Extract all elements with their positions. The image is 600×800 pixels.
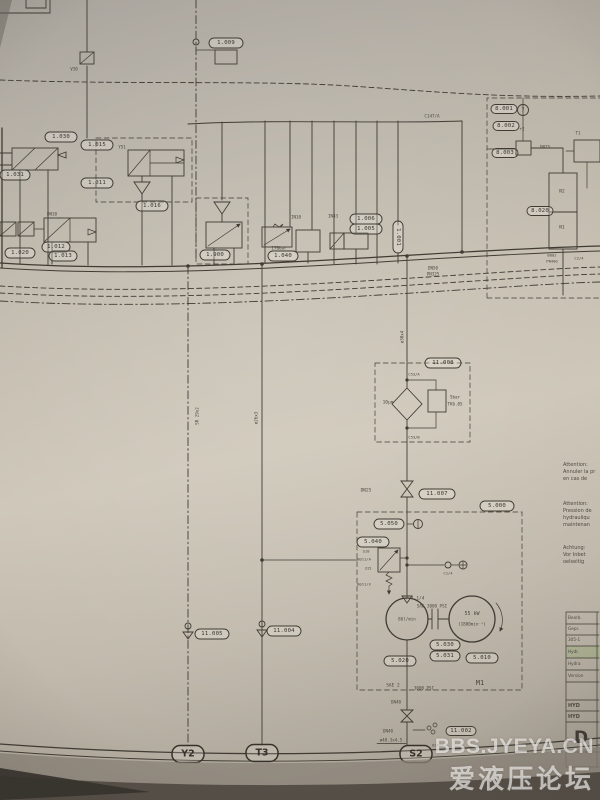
label-sae3000: SAE 3000 PSI [417, 604, 448, 609]
station-top-left: 1.030 1.031 1.015 1.011 Y51 1.016 [0, 132, 192, 265]
motor-id-label: M1 [476, 679, 484, 687]
label-b011a: B011/A [357, 557, 371, 562]
label-b002: B002 [547, 253, 556, 258]
label-pipe-483: ø48.3x4.5 [380, 738, 403, 743]
svg-text:8.020: 8.020 [531, 208, 549, 214]
svg-text:11.002: 11.002 [450, 728, 471, 734]
motor-power-label: 55 kW [464, 611, 480, 617]
svg-text:1.011: 1.011 [88, 180, 106, 186]
label-dn40-b: DN40 [383, 729, 394, 734]
notes-block: Attention: Annuler la pr en cas de Atten… [563, 462, 596, 565]
label-170bar: 170bar [271, 246, 287, 251]
note-fr2-line3: hydrauliqu [563, 515, 590, 521]
label-sr29x2: SR 29x2 [195, 407, 200, 425]
svg-text:5.040: 5.040 [364, 539, 382, 545]
component-tag-1006: 1.006 [350, 214, 382, 224]
svg-text:S2: S2 [409, 749, 422, 760]
svg-text:8.001: 8.001 [495, 106, 513, 112]
note-fr2-line2: Pression de [563, 508, 592, 514]
svg-text:5.010: 5.010 [473, 655, 491, 661]
note-de-line1: Achtung: [563, 545, 586, 551]
svg-text:11.008: 11.008 [432, 360, 454, 366]
label-10um: 10μm [383, 400, 394, 406]
component-tag-11007: 11.007 [419, 489, 455, 499]
component-tag-1020: 1.020 [5, 248, 35, 258]
label-pn400: PN400 [546, 259, 558, 264]
photo-edge-shadow [0, 0, 600, 800]
component-tag-11005: 11.005 [195, 629, 229, 639]
label-3000psi: 3000 PSI [414, 686, 435, 691]
label-c53b: C53/B [408, 435, 420, 440]
svg-text:8.002: 8.002 [497, 123, 515, 129]
titleblock-row-6: Version [568, 673, 584, 678]
note-de-line3: oelseitig [563, 559, 584, 565]
watermark-forum-name: 爱液压论坛 [435, 759, 594, 796]
drawing-frame [0, 0, 600, 761]
schematic-drawing: 1.009 V30 1.030 1.031 1.015 1.011 Y51 1.… [0, 0, 600, 800]
svg-text:1.016: 1.016 [143, 203, 161, 209]
component-tag-1009: 1.009 [209, 38, 243, 48]
svg-text:11.005: 11.005 [201, 631, 222, 637]
component-tag-8003: 8.003 [492, 149, 518, 158]
component-tag-8001: 8.001 [491, 105, 517, 114]
label-c2-4: C2/4 [574, 256, 584, 261]
titleblock-name-2: HYD [568, 714, 580, 720]
component-tag-8020: 8.020 [527, 207, 553, 216]
svg-text:Y2: Y2 [180, 749, 195, 760]
label-y51: Y51 [118, 145, 126, 150]
component-tag-5010: 5.010 [466, 653, 498, 663]
titleblock-row-1: Bearb. [568, 615, 582, 620]
titleblock-row-5: Hydra [568, 661, 581, 666]
label-n1: N1 [559, 225, 565, 231]
svg-text:1.009: 1.009 [217, 40, 235, 46]
label-dn40-a: DN40 [391, 700, 402, 705]
power-unit: 5.000 5.050 5.040 S10 B011/A 315 B011/X … [357, 501, 522, 710]
pump-flow-label: 86l/min [398, 617, 416, 622]
component-tag-1005: 1.005 [350, 224, 382, 234]
motor-speed-label: (1800min⁻¹) [458, 622, 486, 627]
component-tag-1001: 1.001 [393, 221, 403, 253]
svg-text:1.006: 1.006 [357, 216, 375, 222]
component-tag-11004: 11.004 [267, 626, 301, 636]
label-t1: T1 [575, 131, 581, 136]
titleblock-row-3: 305-1 [568, 637, 581, 642]
label-b011x: B011/X [357, 582, 371, 587]
note-fr1-line1: Attention: [563, 462, 588, 468]
component-tag-5050: 5.050 [374, 519, 404, 529]
titleblock-name-1: HYD [568, 703, 580, 709]
label-pn325: PN325 [427, 272, 440, 277]
label-s10: S10 [363, 549, 371, 554]
component-tag-5030: 5.030 [430, 640, 460, 650]
label-pipe-d30: ø30x4 [400, 330, 405, 343]
svg-text:1.001: 1.001 [395, 228, 401, 246]
note-fr1-line3: en cas de [563, 476, 587, 482]
watermark: BBS.JYEYA.CN 爱液压论坛 [435, 735, 594, 796]
component-tag-1015: 1.015 [81, 140, 113, 150]
label-c53a: C53/A [408, 372, 420, 377]
label-c1-4: C1/4 [443, 571, 453, 576]
terminal-t3: T3 [246, 745, 278, 762]
label-plus2: +2 [519, 127, 525, 132]
note-de-line2: Vor Inbet [563, 552, 586, 558]
label-dn25: DN25 [361, 488, 372, 494]
svg-text:1.030: 1.030 [52, 134, 70, 140]
component-tag-1030: 1.030 [45, 132, 77, 142]
titleblock-row-4: Hydr. [568, 649, 579, 654]
note-fr2-line4: maintenan [563, 522, 590, 528]
label-dn25-right: DN25 [540, 145, 551, 150]
component-tag-1012: 1.012 [42, 242, 70, 252]
svg-text:8.003: 8.003 [496, 150, 514, 156]
svg-text:1.040: 1.040 [274, 253, 292, 259]
label-c147a: C147/A [424, 114, 440, 119]
label-p114: P 1 1/4 [406, 596, 425, 602]
component-tag-11008: 11.008 [425, 358, 461, 368]
label-d26x3: ø26x3 [254, 411, 259, 424]
svg-text:1.900: 1.900 [206, 252, 224, 258]
component-tag-8002: 8.002 [493, 122, 519, 131]
svg-text:11.007: 11.007 [426, 491, 447, 497]
svg-text:11.004: 11.004 [273, 628, 295, 634]
component-tag-5031: 5.031 [430, 651, 460, 661]
label-n2: N2 [559, 189, 565, 195]
label-315: 315 [365, 566, 372, 571]
photographed-hydraulic-schematic: 1.009 V30 1.030 1.031 1.015 1.011 Y51 1.… [0, 0, 600, 800]
component-tag-5040: 5.040 [357, 537, 389, 547]
label-in10: IN10 [291, 215, 302, 220]
svg-text:5.050: 5.050 [380, 521, 398, 527]
label-in43: IN43 [328, 214, 339, 219]
watermark-site: BBS.JYEYA.CN [435, 735, 594, 759]
svg-text:5.000: 5.000 [488, 503, 506, 509]
component-tag-1031: 1.031 [0, 170, 30, 180]
component-tag-1040: 1.040 [268, 251, 298, 261]
valve-row: C147/A 1.900 IN10 170bar 1.040 IN43 1.00… [188, 114, 462, 277]
svg-text:1.020: 1.020 [11, 250, 29, 256]
svg-text:1.005: 1.005 [357, 226, 375, 232]
svg-text:1.031: 1.031 [6, 172, 24, 178]
svg-text:1.012: 1.012 [47, 244, 65, 250]
label-5bar: 5bar [450, 395, 461, 400]
label-sae2: SAE 2 [386, 683, 400, 689]
svg-text:5.020: 5.020 [391, 658, 409, 664]
svg-text:5.031: 5.031 [436, 653, 454, 659]
label-v30: V30 [70, 67, 78, 72]
svg-text:1.015: 1.015 [88, 142, 106, 148]
titleblock-row-2: Gepr. [568, 626, 579, 631]
note-fr1-line2: Annuler la pr [563, 469, 596, 475]
component-tag-1016: 1.016 [136, 201, 168, 211]
svg-text:T3: T3 [255, 748, 268, 759]
svg-text:1.013: 1.013 [54, 253, 72, 259]
component-tag-1011: 1.011 [81, 178, 113, 188]
svg-text:5.030: 5.030 [436, 642, 454, 648]
label-dn10: DN10 [47, 212, 58, 217]
label-tk605: TK6.05 [447, 402, 463, 407]
component-tag-5000: 5.000 [480, 501, 514, 511]
component-tag-5020: 5.020 [384, 656, 416, 666]
terminal-y2: Y2 [172, 746, 204, 763]
component-tag-1900: 1.900 [200, 250, 230, 260]
note-fr2-line1: Attention: [563, 501, 588, 507]
component-tag-1013: 1.013 [49, 251, 77, 261]
label-dn50: DN50 [428, 266, 439, 271]
